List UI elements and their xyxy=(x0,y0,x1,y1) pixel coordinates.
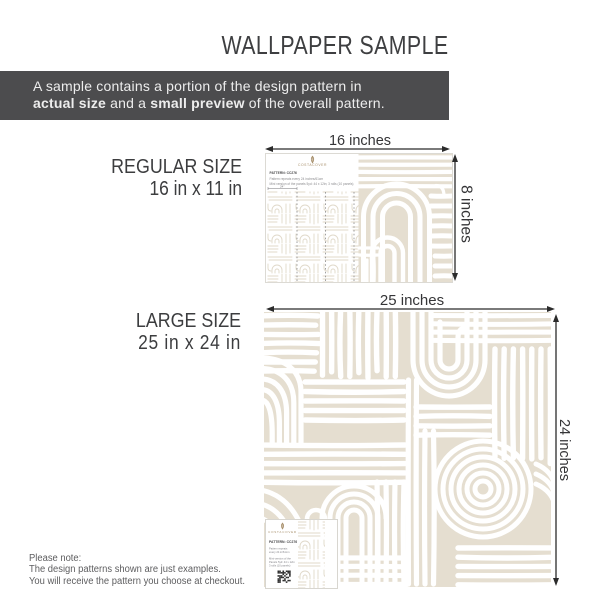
svg-text:PATTERN: CC276: PATTERN: CC276 xyxy=(269,171,297,175)
svg-text:24’’: 24’’ xyxy=(280,184,285,188)
svg-text:Panels 5yd: 44 x 12in: Panels 5yd: 44 x 12in xyxy=(269,560,295,564)
svg-text:every 24 in/61cm: every 24 in/61cm xyxy=(269,550,290,554)
svg-text:COSTACOVER: COSTACOVER xyxy=(268,530,297,534)
svg-text:Mini version of the: Mini version of the xyxy=(269,556,291,560)
svg-text:COSTACOVER: COSTACOVER xyxy=(298,162,327,166)
svg-text:PATTERN: CC276: PATTERN: CC276 xyxy=(269,540,297,544)
svg-text:3 rolls (10 panels): 3 rolls (10 panels) xyxy=(269,563,290,567)
svg-text:Pattern repeats every 24 inche: Pattern repeats every 24 inches/61cm xyxy=(269,177,323,181)
svg-text:Pattern repeats: Pattern repeats xyxy=(269,546,288,550)
